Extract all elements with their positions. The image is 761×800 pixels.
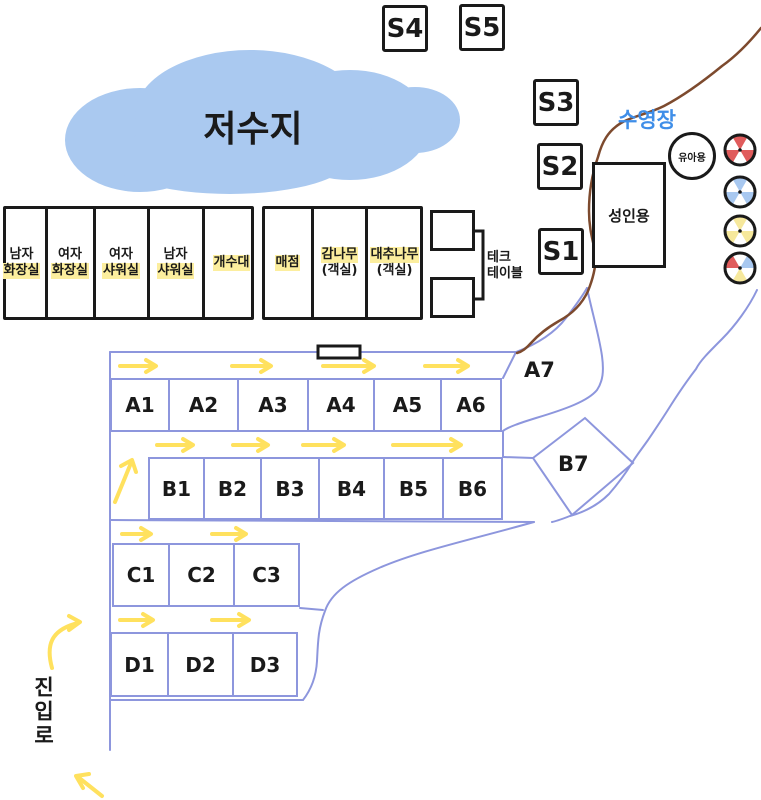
site-cell-b2: B2 [205,459,262,518]
beach-ball-yellow [725,216,755,246]
facility-room-gamnamu: 감나무 (객실) [314,209,368,317]
facility-label: 화장실 [3,263,41,279]
deck-table-bottom [430,277,475,318]
facility-mens-shower: 남자 샤워실 [150,209,205,317]
arrow-d-road-2 [212,614,249,626]
site-cell-c1: C1 [114,545,170,605]
site-cell-b6: B6 [444,459,501,518]
adult-pool: 성인용 [592,162,666,268]
campground-map: 저수지 S4 S5 S3 S2 S1 수영장 유아용 성인용 남자 화장실 여자… [0,0,761,800]
arrow-a-road-1 [120,360,156,372]
beach-ball-multicolor [725,253,755,283]
site-cell-a5: A5 [375,380,442,430]
arrow-b-road-3 [303,439,344,451]
deck-table-label-line2: 테이블 [487,266,523,282]
deck-table-bracket [475,231,483,299]
facility-womens-shower: 여자 샤워실 [96,209,150,317]
facility-mens-toilet: 남자 화장실 [0,209,48,317]
site-box-s5: S5 [459,4,505,51]
arrow-entrance-top [50,616,80,668]
campsite-row-c: C1 C2 C3 [112,543,300,607]
arrow-b-road-1 [157,439,193,451]
site-cell-b1: B1 [150,459,205,518]
campsite-row-b: B1 B2 B3 B4 B5 B6 [148,457,503,520]
facility-store: 매점 [264,209,314,317]
arrow-a-road-4 [425,360,468,372]
beach-balls [725,135,755,283]
facility-label: (객실) [322,263,358,279]
facility-label: 개수대 [213,255,251,271]
kids-pool: 유아용 [668,132,716,180]
facility-label: 샤워실 [157,263,195,279]
site-cell-b5: B5 [385,459,444,518]
site-box-s4: S4 [382,5,428,52]
facility-label: 대추나무 [370,247,420,263]
facility-building-2: 매점 감나무 (객실) 대추나무 (객실) [262,206,423,320]
facility-label: 남자 [164,247,188,263]
facility-label: 여자 [58,247,82,263]
site-cell-c2: C2 [170,545,235,605]
deck-table-top [430,210,475,251]
arrow-b-road-4 [393,439,461,451]
facility-label: 매점 [275,255,301,271]
campsite-row-a: A1 A2 A3 A4 A5 A6 [110,378,502,432]
arrow-c-road-2 [212,528,246,540]
site-cell-d1: D1 [112,634,169,695]
site-box-s1: S1 [538,228,584,275]
campsite-row-d: D1 D2 D3 [110,632,298,697]
arrow-d-road-1 [120,614,153,626]
site-box-s2: S2 [537,143,583,190]
site-label-b7: B7 [558,452,589,476]
facility-label: 감나무 [321,247,359,263]
facility-label: 샤워실 [102,263,140,279]
arrow-entrance-bottom [76,774,102,796]
arrow-a-road-3 [323,360,374,372]
facility-sink: 개수대 [205,209,259,317]
facility-label: 화장실 [51,263,89,279]
beach-ball-blue [725,177,755,207]
reservoir-label: 저수지 [178,100,328,152]
arrow-c-road-1 [122,528,151,540]
site-cell-d2: D2 [169,634,234,695]
site-label-a7: A7 [524,358,555,382]
arrow-a-road-2 [232,360,271,372]
facility-womens-toilet: 여자 화장실 [48,209,96,317]
site-cell-a3: A3 [239,380,309,430]
arrow-b-road-up [115,460,136,502]
site-cell-a1: A1 [112,380,170,430]
site-cell-d3: D3 [234,634,296,695]
facility-room-daechunamu: 대추나무 (객실) [368,209,421,317]
gate-marker [318,346,360,358]
site-box-s3: S3 [533,79,579,126]
facility-building-1: 남자 화장실 여자 화장실 여자 샤워실 남자 샤워실 개수대 [3,206,254,320]
beach-ball-red [725,135,755,165]
site-cell-a4: A4 [309,380,375,430]
site-cell-b3: B3 [262,459,320,518]
site-cell-a6: A6 [442,380,500,430]
entrance-road-label: 진입로 [28,676,58,771]
deck-table-label-line1: 테크 [487,250,523,266]
facility-label: 여자 [109,247,133,263]
arrow-b-road-2 [233,439,268,451]
facility-label: (객실) [377,263,413,279]
deck-table-label: 테크 테이블 [487,250,523,283]
site-cell-a2: A2 [170,380,239,430]
facility-label: 남자 [10,247,34,263]
pool-area-label: 수영장 [618,104,676,134]
site-cell-c3: C3 [235,545,298,605]
site-cell-b4: B4 [320,459,385,518]
